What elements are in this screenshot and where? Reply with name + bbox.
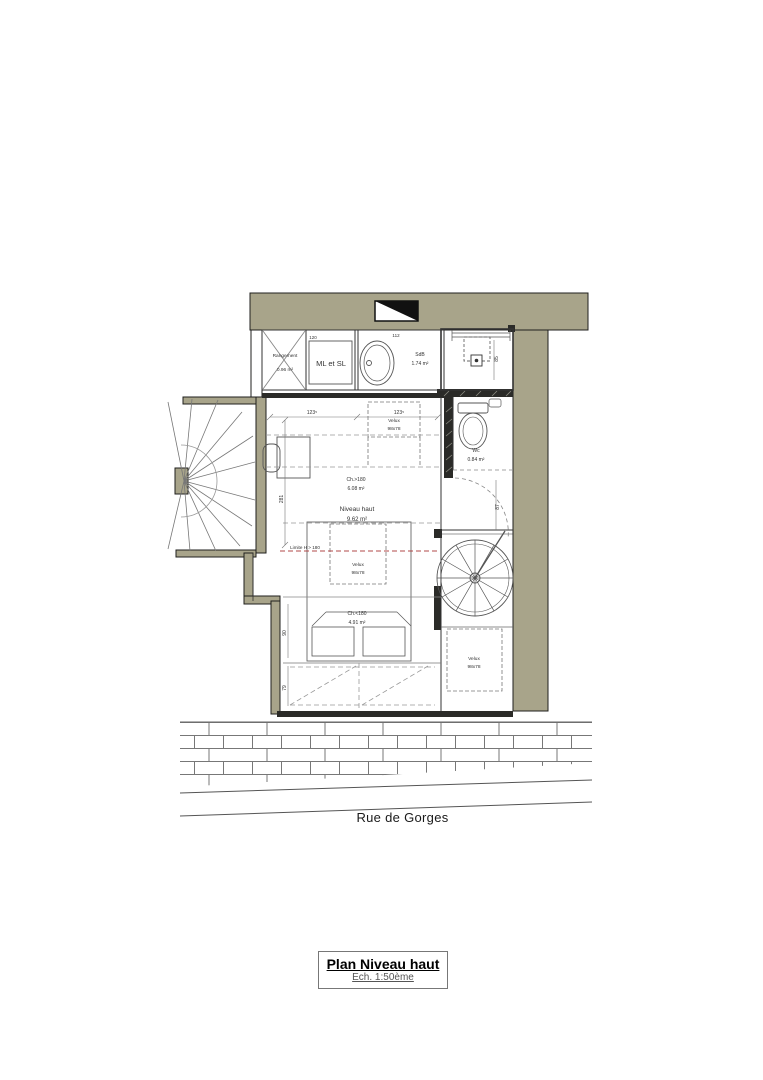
label-ch-inf-area: 4.91 m²	[349, 620, 366, 626]
desk	[277, 437, 310, 478]
bed-pillow-right	[363, 627, 405, 656]
dim-281: 281	[279, 495, 285, 504]
wall-stair-divider	[256, 397, 266, 553]
fixtures	[263, 330, 510, 661]
wall-left-upper	[244, 553, 253, 601]
label-niveau-haut-area: 9.62 m²	[347, 517, 367, 523]
label-sdb-area: 1.74 m²	[412, 361, 429, 367]
dim-width-1: 123⁵	[307, 410, 317, 416]
wall-left-lower	[271, 601, 280, 714]
label-ch-sup: Ch.>180	[346, 477, 365, 483]
plan-scale: Ech. 1:50ème	[352, 972, 414, 984]
washbasin-inner	[364, 345, 390, 381]
street-masonry	[180, 722, 592, 816]
street-name: Rue de Gorges	[330, 810, 475, 825]
wall-stair-top	[183, 397, 256, 404]
plan-title: Plan Niveau haut	[327, 956, 440, 972]
dim-85: 85	[494, 356, 500, 362]
floor-plan-drawing: 123⁵ 123⁵ 112 120 281 90 79 85 87 Rangem…	[0, 0, 763, 1080]
label-niveau-haut: Niveau haut	[340, 506, 375, 513]
label-wc: Wc	[472, 448, 480, 454]
dim-line-right	[494, 340, 496, 530]
label-ml-sl: ML et SL	[316, 359, 346, 368]
brick-wall	[180, 722, 592, 788]
wall-top-band	[250, 293, 588, 330]
toilet-roll-holder	[489, 399, 501, 407]
label-velux-top: Velux	[388, 418, 400, 424]
label-velux-mid-size: 98x78	[351, 570, 364, 576]
label-ch-sup-area: 6.08 m²	[348, 486, 365, 492]
label-wc-area: 0.84 m²	[468, 457, 485, 463]
walls	[175, 293, 588, 714]
dim-120: 120	[309, 335, 317, 340]
bed-pillow-left	[312, 627, 354, 656]
label-ch-inf: Ch.<180	[347, 611, 366, 617]
wall-wc-divider	[444, 397, 453, 478]
label-velux-mid: Velux	[352, 562, 364, 568]
bed	[307, 522, 411, 661]
title-block: Plan Niveau haut Ech. 1:50ème	[318, 951, 448, 989]
label-velux-right-size: 98x78	[467, 664, 480, 670]
washbasin-outer	[360, 341, 394, 385]
spiral-railing	[475, 531, 505, 578]
spiral-staircase	[437, 531, 513, 616]
top-row-outline	[262, 330, 444, 390]
towel-rail	[452, 330, 510, 341]
toilet-tank	[458, 403, 488, 413]
label-velux-top-size: 98x78	[387, 426, 400, 432]
flue-symbol	[375, 301, 418, 321]
rangement-cross	[263, 331, 305, 389]
label-velux-right: Velux	[468, 656, 480, 662]
dim-87: 87	[495, 504, 501, 510]
boiler-dot	[475, 359, 479, 363]
wall-toprow-bottom	[262, 393, 444, 398]
wall-right	[513, 330, 548, 711]
wall-bottom-dark	[277, 711, 513, 717]
velux-windows	[330, 402, 502, 691]
wall-hollow-left	[251, 330, 262, 397]
dim-90: 90	[282, 630, 288, 636]
dim-79: 79	[282, 685, 288, 691]
velux-extension-lines	[368, 437, 420, 467]
dim-width-2: 123⁵	[394, 410, 404, 416]
room-outlines	[253, 329, 513, 711]
dim-112: 112	[392, 333, 400, 338]
floor-plan-page: 123⁵ 123⁵ 112 120 281 90 79 85 87 Rangem…	[0, 0, 763, 1080]
label-rangement: Rangement	[273, 353, 298, 359]
dim-line-top	[267, 414, 441, 420]
label-limite: Limite H > 180	[290, 545, 320, 550]
toilet-bowl-inner	[463, 417, 483, 445]
label-sdb: SdB	[415, 352, 425, 358]
washbasin-faucet	[367, 361, 372, 366]
label-rangement-area: 0.96 m²	[277, 367, 294, 373]
